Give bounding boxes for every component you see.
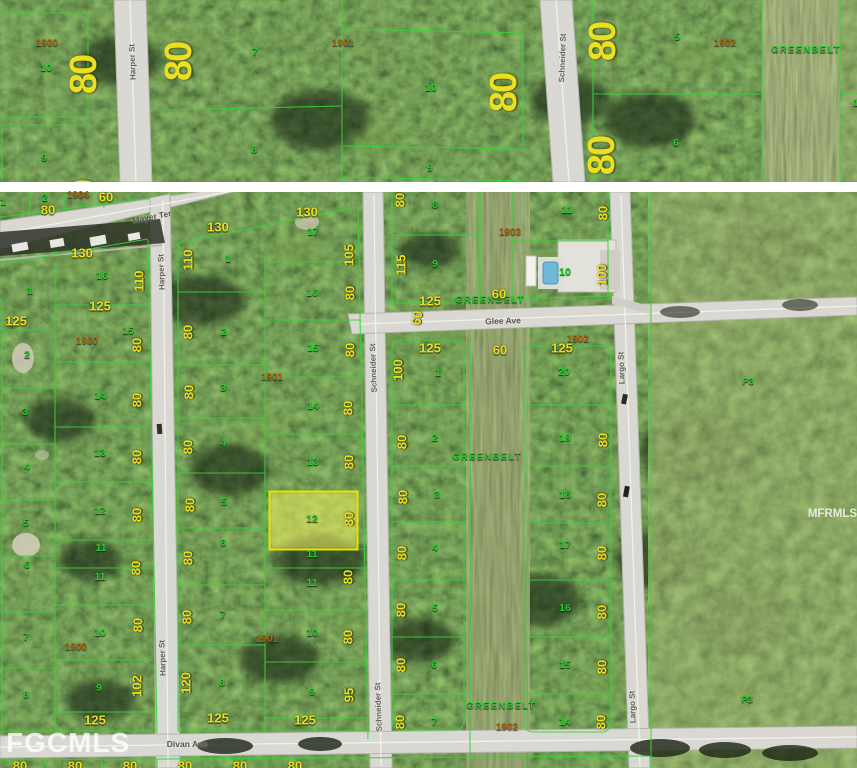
scrub-parcel-texture <box>648 192 857 768</box>
fgcmls-watermark: FGCMLS <box>6 727 130 759</box>
parcel-map: 1900108098080Harper St807819011080980Sch… <box>0 0 857 768</box>
highlighted-parcel-inner <box>272 494 355 547</box>
scrub-topstrip-texture <box>840 0 857 182</box>
greenbelt-strip-top <box>762 0 840 182</box>
mfrmls-watermark: MFRMLS <box>808 508 857 520</box>
image-divider <box>0 182 857 192</box>
aerial-map-graphic <box>0 0 857 768</box>
